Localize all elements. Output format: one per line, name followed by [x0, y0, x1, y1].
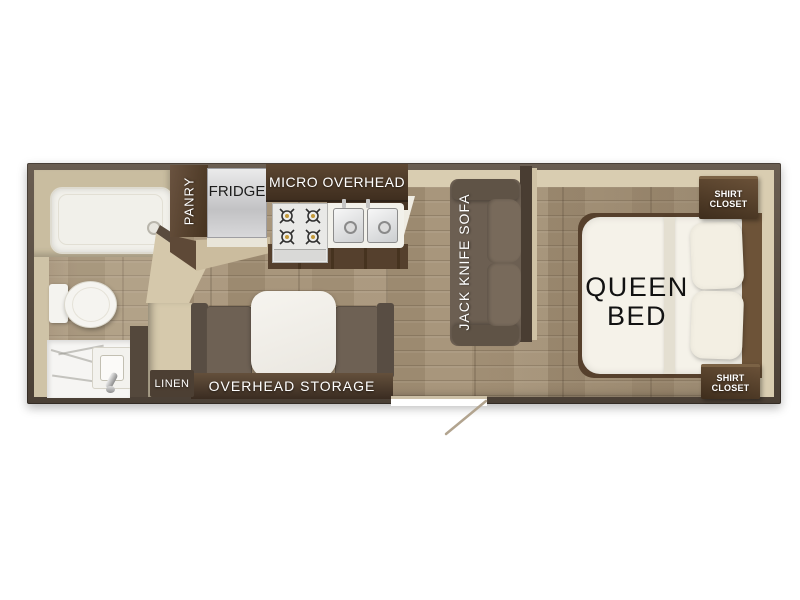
dinette-table	[251, 291, 336, 377]
queen-bed-label: QUEEN BED	[580, 271, 694, 333]
bathtub-drain	[147, 221, 161, 235]
sink-drain	[378, 221, 391, 234]
shirt-closet-bottom: SHIRT CLOSET	[701, 364, 760, 399]
pillow	[690, 221, 745, 290]
pillow	[690, 290, 744, 360]
kitchen-faucet	[366, 199, 370, 208]
queen-bed-label-line2: BED	[607, 302, 667, 331]
dinette-bench-back-right	[377, 303, 394, 378]
bathroom-partition-wall	[130, 326, 150, 397]
kitchen-faucet	[342, 199, 346, 208]
bathroom-faucet-base	[106, 386, 115, 393]
sofa-back-cushion	[487, 199, 521, 263]
entry-door-opening	[391, 396, 487, 406]
sink-drain	[344, 221, 357, 234]
overhead-storage-label: OVERHEAD STORAGE	[209, 378, 376, 394]
bed-headboard	[740, 213, 762, 378]
floorplan-canvas: FRIDGE MICRO OVERHEAD	[0, 0, 800, 600]
toilet-seat-ring	[72, 287, 110, 322]
sofa-label: JACK KNIFE SOFA	[456, 193, 472, 330]
sofa-back-cushion	[487, 263, 521, 326]
stove-drawer	[274, 249, 326, 261]
micro-overhead-label: MICRO OVERHEAD	[269, 174, 405, 190]
microwave-overhead-cabinet: MICRO OVERHEAD	[266, 164, 408, 202]
bathtub-inner-rim	[58, 194, 163, 245]
shirt-closet-label-line1: SHIRT	[717, 373, 745, 383]
dinette-bench-right	[335, 306, 379, 377]
overhead-storage-cabinet: OVERHEAD STORAGE	[191, 373, 393, 399]
sofa-partition-edge	[532, 168, 537, 340]
refrigerator: FRIDGE	[207, 168, 267, 238]
shirt-closet-label-line1: SHIRT	[715, 189, 743, 199]
pantry-label: PANRY	[182, 177, 197, 226]
fridge-label: FRIDGE	[209, 183, 266, 200]
dinette-bench-left	[206, 306, 252, 377]
shirt-closet-label-line2: CLOSET	[710, 199, 748, 209]
sofa-partition-wall	[520, 166, 532, 342]
stove-burners	[273, 204, 327, 248]
linen-cabinet: LINEN	[150, 370, 194, 397]
shirt-closet-top: SHIRT CLOSET	[699, 176, 758, 219]
fridge-base-trim	[207, 238, 267, 247]
queen-bed-label-line1: QUEEN	[585, 273, 689, 302]
linen-label: LINEN	[155, 378, 190, 390]
shirt-closet-label-line2: CLOSET	[712, 383, 750, 393]
